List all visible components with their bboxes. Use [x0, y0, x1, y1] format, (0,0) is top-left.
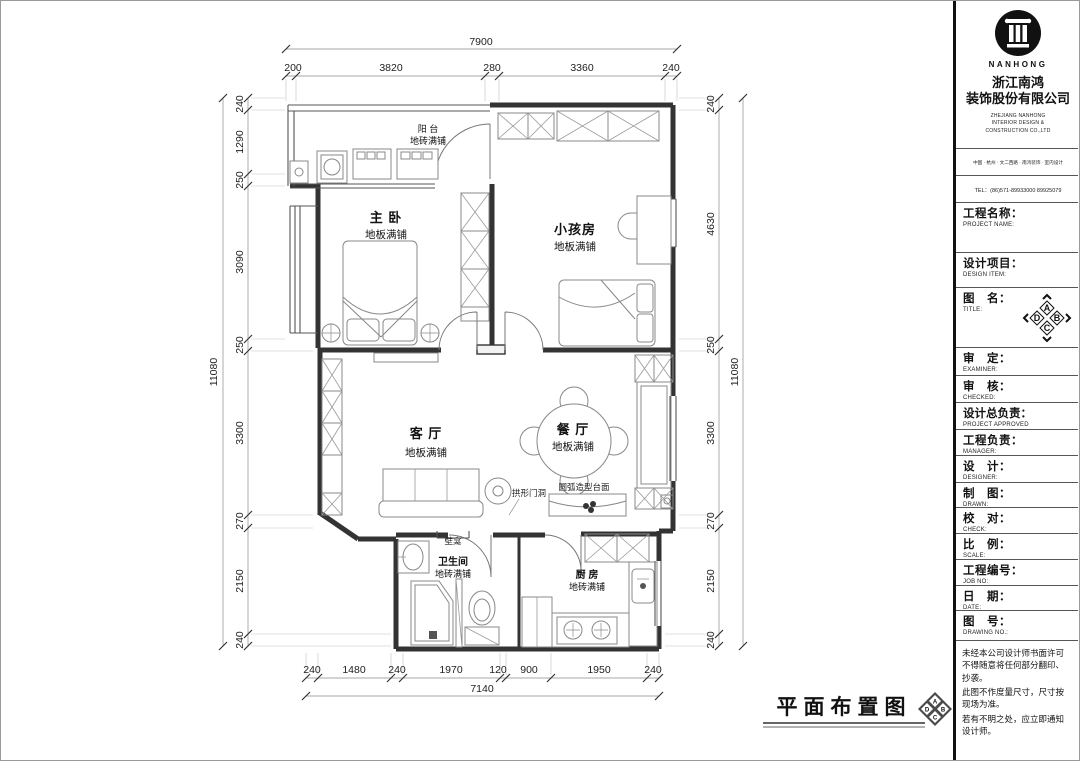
row-designer: 设 计： DESIGNER:: [956, 456, 1078, 483]
note-copyright: 未经本公司设计师书面许可不得随意将任何部分翻印、抄袭。: [962, 647, 1072, 684]
orientation-letter-b: B: [941, 708, 946, 714]
row-examiner-en: EXAMINER:: [963, 367, 1073, 373]
sofa: [379, 469, 511, 517]
company-name-en-line1: ZHEJIANG NANHONG: [985, 113, 1050, 121]
kitchen-window: [655, 561, 661, 626]
company-address-row: 中国 · 杭州 · 文二西路 · 南鸿装饰 · 室内设计: [956, 149, 1078, 176]
row-checked-cn: 审 核：: [963, 378, 1073, 394]
row-project-approved-en: PROJECT APPROVED: [963, 422, 1073, 428]
master-bed: [343, 241, 417, 345]
dim-bottom-0: 240: [303, 664, 321, 676]
dim-top-overall: 7900: [469, 36, 493, 48]
orientation-letter-a: A: [933, 700, 938, 706]
company-name-en-line3: CONSTRUCTION CO.,LTD: [985, 128, 1050, 136]
dim-bottom-2: 240: [388, 664, 406, 676]
row-scale-en: SCALE:: [963, 553, 1073, 559]
row-examiner: 审 定： EXAMINER:: [956, 348, 1078, 376]
dim-right-1: 4630: [705, 212, 717, 236]
master-wardrobe: [461, 193, 489, 321]
bath-sink: [398, 541, 429, 573]
row-job-no-cn: 工程编号：: [963, 562, 1073, 578]
room-label-dining: 餐 厅: [556, 422, 590, 437]
exterior-walls: [290, 105, 673, 649]
row-drawing-no: 图 号： DRAWING NO.:: [956, 611, 1078, 641]
row-title: 图 名： TITLE: A B C D: [956, 288, 1078, 348]
row-scale: 比 例： SCALE:: [956, 534, 1078, 560]
floor-plan-svg: 阳 台 地砖满铺 主 卧 地板满铺 小孩房 地板满铺 客 厅 地板满铺 餐 厅 …: [1, 1, 953, 760]
row-manager-en: MANAGER:: [963, 449, 1073, 455]
room-label-kids: 小孩房: [554, 222, 596, 237]
company-logo-icon: [994, 9, 1042, 57]
dim-right-4: 270: [705, 512, 717, 530]
note-measure: 此图不作度量尺寸，尺寸按现场为准。: [962, 686, 1072, 711]
dining-strip-cabinets: [635, 355, 673, 509]
company-name-cn-line2: 装饰股份有限公司: [966, 91, 1070, 107]
dim-bottom-3: 1970: [439, 664, 463, 676]
company-header: NANHONG 浙江南鸿 装饰股份有限公司 ZHEJIANG NANHONG I…: [956, 1, 1078, 149]
room-finish-kids: 地板满铺: [554, 240, 596, 253]
room-finish-living: 地板满铺: [405, 446, 447, 459]
room-finish-balcony: 地砖满铺: [410, 135, 446, 146]
fridge: [522, 597, 552, 647]
dim-bottom-7: 240: [644, 664, 662, 676]
kids-door: [505, 312, 543, 350]
orientation-a: A: [1044, 303, 1051, 313]
row-date: 日 期： DATE:: [956, 586, 1078, 611]
dim-bottom-5: 900: [520, 664, 538, 676]
row-drawing-no-en: DRAWING NO.:: [963, 630, 1073, 636]
living-wall-cabinet: [322, 359, 342, 515]
kids-wardrobe: [498, 111, 659, 141]
annotation-arch-opening: 拱形门洞: [512, 488, 546, 498]
row-manager: 工程负责： MANAGER:: [956, 430, 1078, 456]
company-logo-text: NANHONG: [989, 60, 1048, 69]
dim-right-overall: 11080: [729, 358, 741, 387]
dim-bottom-overall: 7140: [470, 683, 494, 695]
dim-bottom-6: 1950: [587, 664, 611, 676]
row-design-item-cn: 设计项目：: [963, 255, 1073, 271]
annotation-niche: 壁龛: [444, 536, 462, 546]
company-tel-row: TEL：(86)571-89933000 89925079: [956, 176, 1078, 203]
kitchen-sink: [629, 562, 657, 646]
row-check: 校 对： CHECK:: [956, 508, 1078, 534]
row-title-en: TITLE:: [963, 307, 1011, 313]
row-project-name-en: PROJECT NAME:: [963, 222, 1073, 228]
dim-left-1: 1290: [234, 130, 246, 154]
dim-top: 7900 200 3820 280 3360 240: [282, 36, 681, 80]
row-project-name: 工程名称： PROJECT NAME:: [956, 203, 1078, 253]
row-manager-cn: 工程负责：: [963, 432, 1073, 448]
row-check-en: CHECK:: [963, 527, 1073, 533]
orientation-letter-d: D: [925, 708, 930, 714]
dim-left-8: 240: [234, 631, 246, 649]
dim-right-6: 240: [705, 631, 717, 649]
dim-left: 11080 240 1290 250 3090 250 3300 270 215…: [208, 94, 252, 650]
entry-door: [435, 124, 490, 179]
company-tel: TEL：(86)571-89933000 89925079: [975, 186, 1062, 194]
master-bay-window: [290, 206, 318, 333]
master-door: [439, 312, 477, 350]
row-checked: 审 核： CHECKED:: [956, 376, 1078, 403]
orientation-diamond-icon: A B C D: [918, 692, 952, 726]
dim-top-3: 3360: [570, 62, 594, 74]
dim-right: 240 4630 250 3300 270 2150 240 11080: [705, 94, 747, 650]
room-label-balcony: 阳 台: [418, 123, 439, 134]
orientation-symbol: A B C D: [1021, 292, 1073, 344]
row-date-cn: 日 期：: [963, 588, 1073, 604]
row-scale-cn: 比 例：: [963, 536, 1073, 552]
row-drawing-no-cn: 图 号：: [963, 613, 1073, 629]
room-label-master: 主 卧: [370, 210, 403, 225]
kids-bed: [559, 280, 655, 346]
row-project-approved: 设计总负责： PROJECT APPROVED: [956, 403, 1078, 430]
balcony-cabinets: [353, 149, 438, 179]
toilet: [465, 591, 499, 645]
company-address: 中国 · 杭州 · 文二西路 · 南鸿装饰 · 室内设计: [973, 160, 1063, 166]
balcony-washer: [290, 151, 347, 183]
row-designer-en: DESIGNER:: [963, 475, 1073, 481]
curved-counter: [549, 494, 626, 516]
dim-right-5: 2150: [705, 569, 717, 593]
dim-bottom-1: 1480: [342, 664, 366, 676]
dim-right-0: 240: [705, 95, 717, 113]
annotation-arch-leader: [509, 499, 519, 515]
shower: [411, 581, 453, 645]
company-name-cn: 浙江南鸿 装饰股份有限公司: [966, 75, 1070, 108]
orientation-c: C: [1044, 323, 1051, 333]
kitchen-door: [545, 535, 581, 573]
room-label-kitchen: 厨 房: [576, 568, 599, 581]
company-name-en-line2: INTERIOR DESIGN &: [985, 120, 1050, 128]
kids-desk: [618, 196, 671, 264]
title-block: NANHONG 浙江南鸿 装饰股份有限公司 ZHEJIANG NANHONG I…: [953, 1, 1078, 760]
row-job-no: 工程编号： JOB NO:: [956, 560, 1078, 586]
orientation-letter-c: C: [933, 716, 938, 722]
dim-left-0: 240: [234, 95, 246, 113]
row-examiner-cn: 审 定：: [963, 350, 1073, 366]
dim-left-overall: 11080: [208, 358, 220, 387]
row-designer-cn: 设 计：: [963, 458, 1073, 474]
dim-top-2: 280: [483, 62, 501, 74]
dim-top-4: 240: [662, 62, 680, 74]
row-checked-en: CHECKED:: [963, 395, 1073, 401]
room-finish-dining: 地板满铺: [552, 440, 594, 453]
company-name-cn-line1: 浙江南鸿: [966, 75, 1070, 91]
tv-cabinet: [374, 353, 438, 362]
row-design-item-en: DESIGN ITEM:: [963, 272, 1073, 278]
sheet-title: 平面布置图: [763, 695, 925, 727]
room-finish-master: 地板满铺: [365, 228, 407, 241]
annotation-curved-counter: 圆弧造型台面: [558, 482, 610, 492]
dim-top-1: 3820: [379, 62, 403, 74]
dim-bottom: 240 1480 240 1970 120 900 1950 240 7140: [302, 664, 663, 700]
room-label-living: 客 厅: [410, 426, 443, 441]
dim-right-2: 250: [705, 336, 717, 354]
dim-left-3: 3090: [234, 250, 246, 274]
note-contact: 若有不明之处，应立即通知设计师。: [962, 713, 1072, 738]
row-project-approved-cn: 设计总负责：: [963, 405, 1073, 421]
room-finish-bath: 地砖满铺: [435, 568, 471, 579]
dim-left-4: 250: [234, 336, 246, 354]
kitchen-top-cabinet: [585, 534, 649, 562]
orientation-d: D: [1034, 313, 1041, 323]
dim-left-7: 2150: [234, 569, 246, 593]
dim-left-6: 270: [234, 512, 246, 530]
row-drawn: 制 图： DRAWN:: [956, 483, 1078, 508]
row-project-name-cn: 工程名称：: [963, 205, 1073, 221]
row-title-cn: 图 名：: [963, 290, 1011, 306]
dim-right-3: 3300: [705, 421, 717, 445]
dim-top-0: 200: [284, 62, 302, 74]
row-design-item: 设计项目： DESIGN ITEM:: [956, 253, 1078, 288]
dim-left-2: 250: [234, 171, 246, 189]
room-finish-kitchen: 地砖满铺: [569, 581, 605, 592]
company-name-en: ZHEJIANG NANHONG INTERIOR DESIGN & CONST…: [985, 113, 1050, 136]
bath-divider: [456, 579, 462, 647]
row-check-cn: 校 对：: [963, 510, 1073, 526]
dim-left-5: 3300: [234, 421, 246, 445]
sheet: 阳 台 地砖满铺 主 卧 地板满铺 小孩房 地板满铺 客 厅 地板满铺 餐 厅 …: [0, 0, 1080, 761]
sheet-title-text: 平面布置图: [777, 695, 912, 719]
row-drawn-cn: 制 图：: [963, 485, 1073, 501]
stove: [552, 613, 629, 647]
room-label-bath: 卫生间: [438, 555, 468, 568]
dim-bottom-4: 120: [489, 664, 507, 676]
orientation-b: B: [1054, 313, 1061, 323]
notes-section: 未经本公司设计师书面许可不得随意将任何部分翻印、抄袭。 此图不作度量尺寸，尺寸按…: [956, 641, 1078, 760]
drawing-area: 阳 台 地砖满铺 主 卧 地板满铺 小孩房 地板满铺 客 厅 地板满铺 餐 厅 …: [1, 1, 953, 760]
row-job-no-en: JOB NO:: [963, 579, 1073, 585]
